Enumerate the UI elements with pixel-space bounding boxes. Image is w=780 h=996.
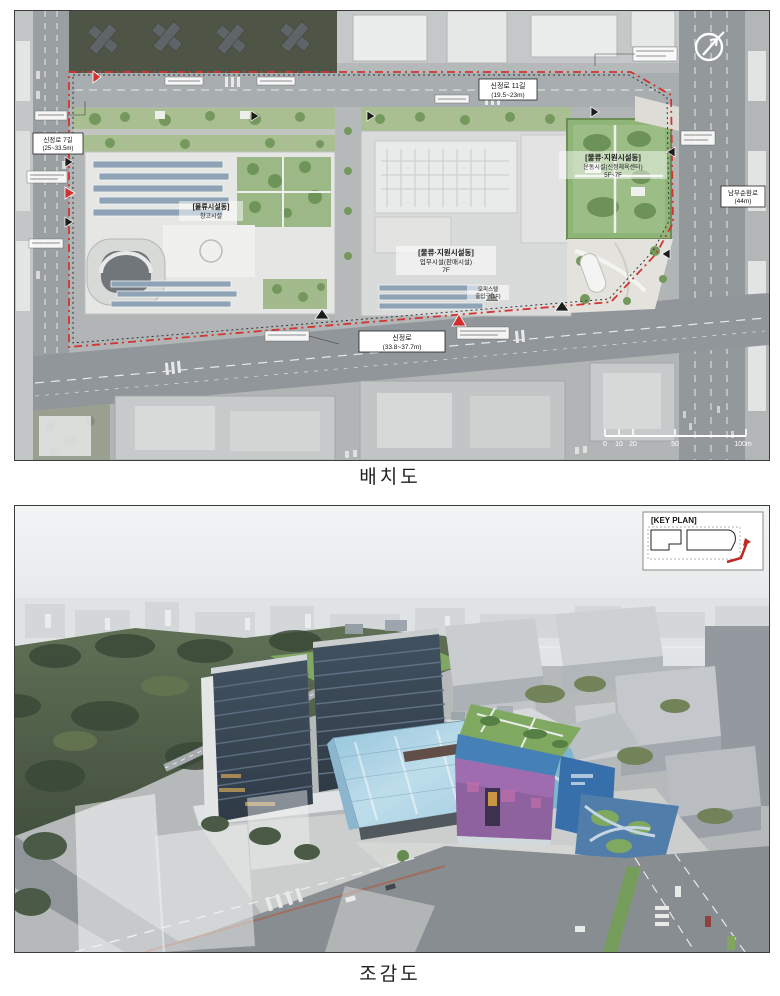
west-context-buildings xyxy=(15,11,33,460)
svg-text:[물류·지원시설동]: [물류·지원시설동] xyxy=(585,152,641,162)
north-apartment-context xyxy=(69,11,337,73)
svg-text:20: 20 xyxy=(629,441,637,448)
svg-text:출입구(1F): 출입구(1F) xyxy=(475,292,500,300)
road-label-sinjeongro7gil: 신정로 7길 (25~33.5m) xyxy=(33,133,83,154)
svg-text:[KEY PLAN]: [KEY PLAN] xyxy=(651,516,697,525)
building-label-logistics: [물류시설동] 창고시설 xyxy=(179,201,243,221)
svg-text:5F~7F: 5F~7F xyxy=(604,173,622,179)
svg-text:[물류시설동]: [물류시설동] xyxy=(193,202,230,211)
road-label-sinjeongro: 신정로 (33.8~37.7m) xyxy=(359,331,445,352)
svg-text:오피스텔: 오피스텔 xyxy=(478,285,498,293)
svg-text:(25~33.5m): (25~33.5m) xyxy=(43,146,74,152)
svg-text:7F: 7F xyxy=(442,267,450,274)
svg-text:신정로: 신정로 xyxy=(392,333,412,342)
birds-eye-image: [KEY PLAN] xyxy=(15,506,769,952)
site-plan-image: 신정로 11길 (19.5~23m) 남부순환로 (44m) 신정로 7길 (2… xyxy=(15,11,769,460)
road-label-nambusunhwanro: 남부순환로 (44m) xyxy=(721,186,765,207)
logistics-building xyxy=(85,152,335,314)
key-plan: [KEY PLAN] xyxy=(643,512,763,570)
svg-text:(19.5~23m): (19.5~23m) xyxy=(491,92,524,99)
svg-text:[물류·지원시설동]: [물류·지원시설동] xyxy=(418,247,474,257)
birds-eye-caption: 조감도 xyxy=(0,959,780,986)
svg-text:업무시설(판매시설): 업무시설(판매시설) xyxy=(420,257,472,266)
svg-text:100m: 100m xyxy=(734,441,752,448)
west-green-band xyxy=(73,108,335,152)
road-sinjeongro7gil xyxy=(33,11,69,371)
retail-building xyxy=(361,107,571,316)
road-sinjeongro11gil xyxy=(69,73,679,107)
officetel-entrance-note: 오피스텔 출입구(1F) xyxy=(467,285,509,300)
birds-eye-figure: [KEY PLAN] xyxy=(14,505,770,953)
svg-text:운동시설(신정체육센터): 운동시설(신정체육센터) xyxy=(583,163,642,171)
svg-text:10: 10 xyxy=(615,441,623,448)
site-plan-figure: 신정로 11길 (19.5~23m) 남부순환로 (44m) 신정로 7길 (2… xyxy=(14,10,770,461)
svg-text:남부순환로: 남부순환로 xyxy=(728,188,758,197)
building-label-sports: [물류·지원시설동] 운동시설(신정체육센터) 5F~7F xyxy=(559,151,667,179)
svg-text:(44m): (44m) xyxy=(735,198,752,205)
svg-text:0: 0 xyxy=(603,441,607,448)
svg-text:(33.8~37.7m): (33.8~37.7m) xyxy=(383,344,422,351)
north-east-context xyxy=(337,11,679,73)
road-nambusunhwanro xyxy=(679,11,769,460)
svg-text:신정로 11길: 신정로 11길 xyxy=(491,81,526,90)
svg-text:창고시설: 창고시설 xyxy=(200,212,222,220)
site-plan-caption: 배치도 xyxy=(0,462,780,489)
svg-text:신정로 7길: 신정로 7길 xyxy=(43,135,72,144)
svg-text:50: 50 xyxy=(671,441,679,448)
road-label-sinjeongro11gil: 신정로 11길 (19.5~23m) xyxy=(479,79,537,100)
building-label-retail: [물류·지원시설동] 업무시설(판매시설) 7F xyxy=(396,246,496,275)
